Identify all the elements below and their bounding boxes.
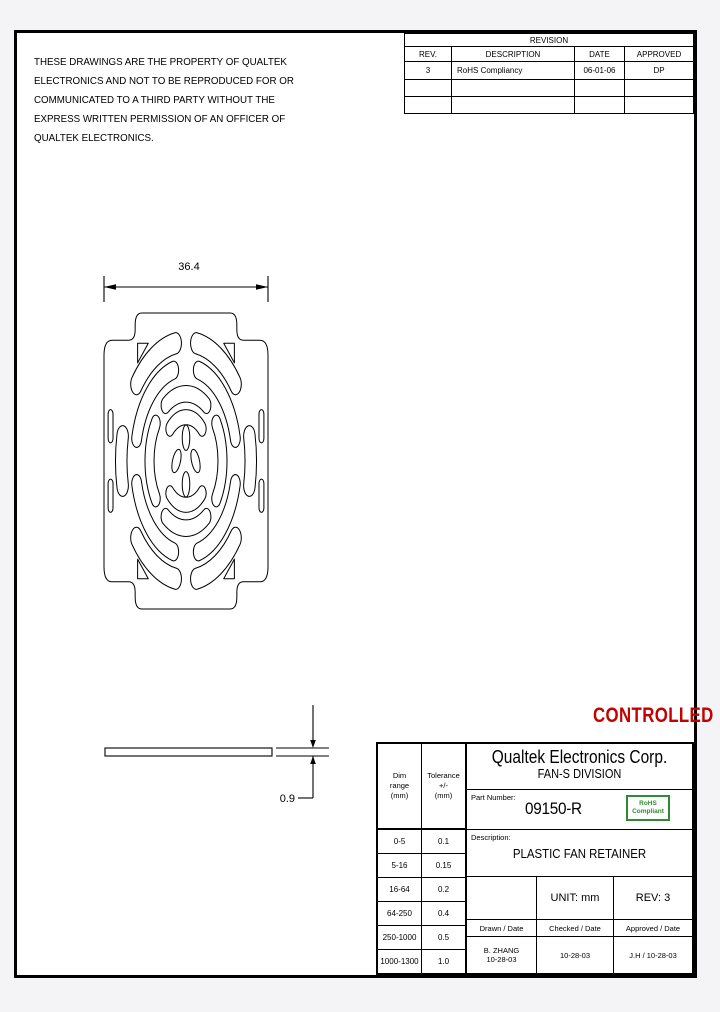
drawn-name: B. ZHANG (484, 946, 519, 955)
tolerance-table: Dim range (mm) Tolerance +/- (mm) 0-5 0.… (378, 744, 467, 973)
property-notice: THESE DRAWINGS ARE THE PROPERTY OF QUALT… (34, 53, 294, 148)
signature-header-row: Drawn / Date Checked / Date Approved / D… (467, 920, 692, 937)
revision-approved (625, 97, 694, 114)
arrowhead-right-icon (256, 284, 268, 290)
ring-slot-cutout (212, 415, 227, 507)
ring-slots (115, 333, 256, 590)
ring-slot-cutout (191, 333, 242, 395)
tolerance-header-line: (mm) (435, 791, 453, 801)
revision-row-empty (405, 80, 694, 97)
width-dimension-label: 36.4 (178, 261, 199, 273)
ring-slot-cutout (115, 426, 128, 497)
grille-outline (104, 313, 268, 609)
dim-range-header-line: range (390, 781, 409, 791)
revision-description: RoHS Compliancy (452, 62, 575, 80)
revision-col-rev: REV. (405, 47, 452, 62)
revision-rev (405, 97, 452, 114)
ring-slot-cutout (193, 475, 240, 561)
tolerance-row: 1000-1300 1.0 (378, 950, 465, 973)
ring-slot-cutout (166, 410, 206, 437)
ring-slot-cutout (145, 415, 160, 507)
dim-range-value: 5-16 (378, 854, 422, 877)
part-number-label: Part Number: (471, 793, 516, 802)
notice-line: EXPRESS WRITTEN PERMISSION OF AN OFFICER… (34, 110, 294, 129)
dim-range-header: Dim range (mm) (378, 744, 422, 828)
revision-row: 3 RoHS Compliancy 06-01-06 DP (405, 62, 694, 80)
title-block: Dim range (mm) Tolerance +/- (mm) 0-5 0.… (376, 742, 694, 975)
checked-value: 10-28-03 (537, 937, 614, 973)
signature-value-row: B. ZHANG 10-28-03 10-28-03 J.H / 10-28-0… (467, 937, 692, 973)
arrowhead-down-icon (310, 740, 316, 748)
revision-col-approved: APPROVED (625, 47, 694, 62)
revision-approved: DP (625, 62, 694, 80)
hub-petal-cutout (182, 472, 190, 497)
ring-slot-cutout (166, 486, 206, 513)
dim-range-value: 16-64 (378, 878, 422, 901)
revision-row-empty (405, 97, 694, 114)
tolerance-header-line: +/- (439, 781, 448, 791)
arrowhead-up-icon (310, 756, 316, 764)
edge-slot (108, 479, 113, 512)
tolerance-value: 0.1 (422, 830, 465, 853)
dim-range-value: 64-250 (378, 902, 422, 925)
division-name: FAN-S DIVISION (481, 767, 679, 781)
revision-table-title: REVISION (405, 34, 694, 47)
revision-table: REVISION REV. DESCRIPTION DATE APPROVED … (404, 33, 694, 114)
revision-date (575, 97, 625, 114)
dim-range-value: 1000-1300 (378, 950, 422, 973)
notice-line: COMMUNICATED TO A THIRD PARTY WITHOUT TH… (34, 91, 294, 110)
ring-slot-cutout (131, 333, 182, 395)
side-view-drawing: 0.9 (95, 695, 345, 815)
tolerance-value: 0.5 (422, 926, 465, 949)
part-number-value: 09150-R (525, 799, 582, 819)
rohs-badge-line: Compliant (629, 808, 667, 816)
checked-label: Checked / Date (537, 920, 614, 936)
notice-line: ELECTRONICS AND NOT TO BE REPRODUCED FOR… (34, 72, 294, 91)
hub-petal-cutout (170, 447, 183, 476)
drawn-date: 10-28-03 (484, 955, 519, 964)
page: { "page": { "background": "#f4f4f7", "sh… (0, 0, 720, 1012)
unit-value: UNIT: mm (537, 877, 614, 919)
ring-slot-cutout (131, 527, 182, 589)
hub-petal-cutout (182, 425, 190, 450)
arrowhead-left-icon (104, 284, 116, 290)
drawn-value: B. ZHANG 10-28-03 (467, 937, 537, 973)
fan-retainer-grille (104, 313, 268, 609)
part-number-row: Part Number: 09150-R RoHS Compliant (467, 790, 692, 830)
dim-range-value: 0-5 (378, 830, 422, 853)
rohs-compliant-badge: RoHS Compliant (626, 795, 670, 821)
company-header: Qualtek Electronics Corp. FAN-S DIVISION (467, 744, 692, 790)
drawing-sheet: THESE DRAWINGS ARE THE PROPERTY OF QUALT… (14, 30, 697, 978)
ring-slot-cutout (132, 361, 179, 447)
ring-slot-cutout (193, 361, 240, 447)
notice-line: THESE DRAWINGS ARE THE PROPERTY OF QUALT… (34, 53, 294, 72)
tolerance-value: 0.2 (422, 878, 465, 901)
empty-cell (467, 877, 537, 919)
revision-date (575, 80, 625, 97)
tolerance-row: 0-5 0.1 (378, 830, 465, 854)
tolerance-value: 0.4 (422, 902, 465, 925)
rohs-badge-line: RoHS (629, 800, 667, 808)
company-name: Qualtek Electronics Corp. (483, 747, 677, 767)
edge-slot (108, 410, 113, 443)
tolerance-row: 250-1000 0.5 (378, 926, 465, 950)
description-value: PLASTIC FAN RETAINER (481, 846, 679, 861)
ring-slot-cutout (191, 527, 242, 589)
description-row: Description: PLASTIC FAN RETAINER (467, 830, 692, 877)
rev-value: REV: 3 (614, 877, 692, 919)
drawn-label: Drawn / Date (467, 920, 537, 936)
revision-approved (625, 80, 694, 97)
tolerance-value: 0.15 (422, 854, 465, 877)
approved-label: Approved / Date (614, 920, 692, 936)
edge-slot (259, 479, 264, 512)
tolerance-value: 1.0 (422, 950, 465, 973)
controlled-stamp: CONTROLLED (593, 704, 714, 728)
revision-rev: 3 (405, 62, 452, 80)
notice-line: QUALTEK ELECTRONICS. (34, 129, 294, 148)
tolerance-row: 64-250 0.4 (378, 902, 465, 926)
tolerance-row: 16-64 0.2 (378, 878, 465, 902)
edge-slot (259, 410, 264, 443)
revision-col-date: DATE (575, 47, 625, 62)
revision-description (452, 97, 575, 114)
revision-rev (405, 80, 452, 97)
thickness-dimension-label: 0.9 (280, 793, 295, 805)
approved-value: J.H / 10-28-03 (614, 937, 692, 973)
description-label: Description: (471, 833, 511, 842)
revision-description (452, 80, 575, 97)
dim-range-value: 250-1000 (378, 926, 422, 949)
retainer-side-profile (105, 748, 272, 756)
hub-petal-cutout (189, 447, 202, 476)
unit-rev-row: UNIT: mm REV: 3 (467, 877, 692, 920)
revision-col-description: DESCRIPTION (452, 47, 575, 62)
ring-slot-cutout (132, 475, 179, 561)
ring-slot-cutout (244, 426, 257, 497)
revision-date: 06-01-06 (575, 62, 625, 80)
tolerance-table-header: Dim range (mm) Tolerance +/- (mm) (378, 744, 465, 830)
dim-range-header-line: (mm) (391, 791, 409, 801)
tolerance-header-line: Tolerance (427, 771, 460, 781)
tolerance-row: 5-16 0.15 (378, 854, 465, 878)
title-block-main: Qualtek Electronics Corp. FAN-S DIVISION… (467, 744, 692, 973)
tolerance-header: Tolerance +/- (mm) (422, 744, 465, 828)
dim-range-header-line: Dim (393, 771, 406, 781)
front-view-drawing: 36.4 (95, 252, 285, 620)
